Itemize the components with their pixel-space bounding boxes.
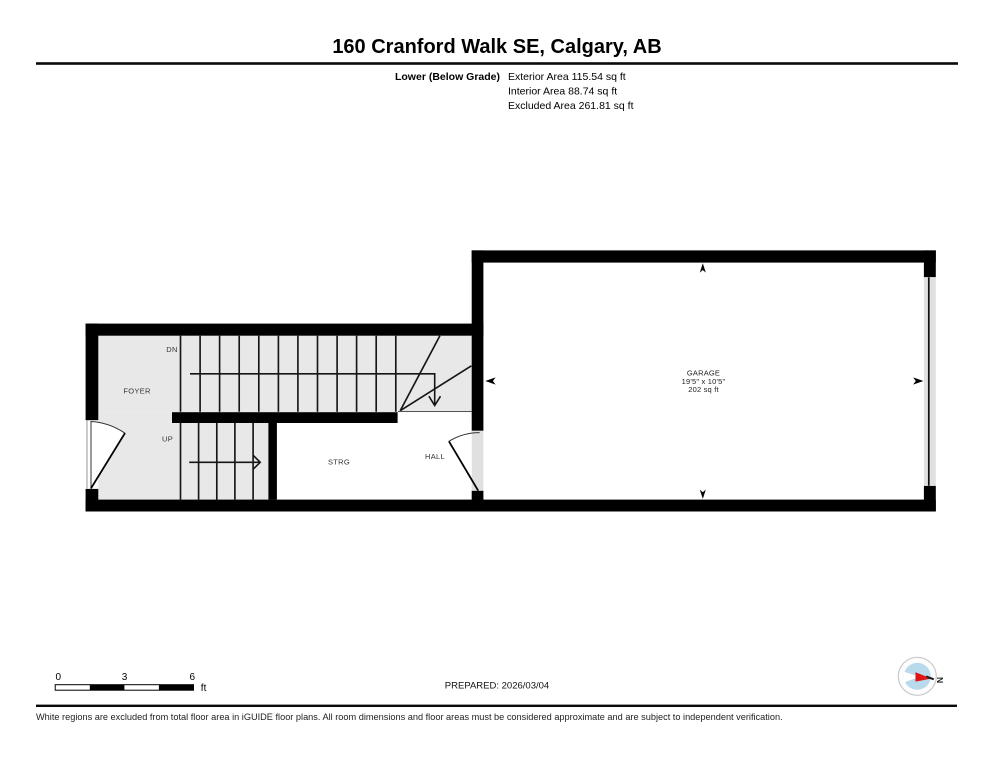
svg-text:HALL: HALL: [425, 452, 445, 461]
svg-text:Interior Area 88.74 sq ft: Interior Area 88.74 sq ft: [508, 86, 617, 98]
svg-text:Exterior Area 115.54 sq ft: Exterior Area 115.54 sq ft: [508, 71, 626, 83]
svg-text:Lower (Below Grade): Lower (Below Grade): [395, 71, 500, 83]
svg-text:Excluded Area 261.81 sq ft: Excluded Area 261.81 sq ft: [508, 100, 634, 112]
svg-text:N: N: [935, 677, 945, 683]
svg-text:STRG: STRG: [328, 457, 350, 466]
svg-text:PREPARED: 2026/03/04: PREPARED: 2026/03/04: [445, 681, 549, 692]
svg-text:UP: UP: [162, 435, 173, 444]
svg-text:0: 0: [56, 672, 62, 683]
svg-text:6: 6: [190, 672, 196, 683]
svg-text:DN: DN: [166, 345, 177, 354]
svg-text:ft: ft: [201, 683, 207, 694]
svg-text:FOYER: FOYER: [123, 387, 151, 396]
svg-text:3: 3: [122, 672, 128, 683]
svg-text:160 Cranford Walk SE, Calgary,: 160 Cranford Walk SE, Calgary, AB: [332, 36, 661, 58]
svg-text:202 sq ft: 202 sq ft: [688, 385, 719, 394]
svg-text:White regions are excluded fro: White regions are excluded from total fl…: [36, 712, 783, 722]
